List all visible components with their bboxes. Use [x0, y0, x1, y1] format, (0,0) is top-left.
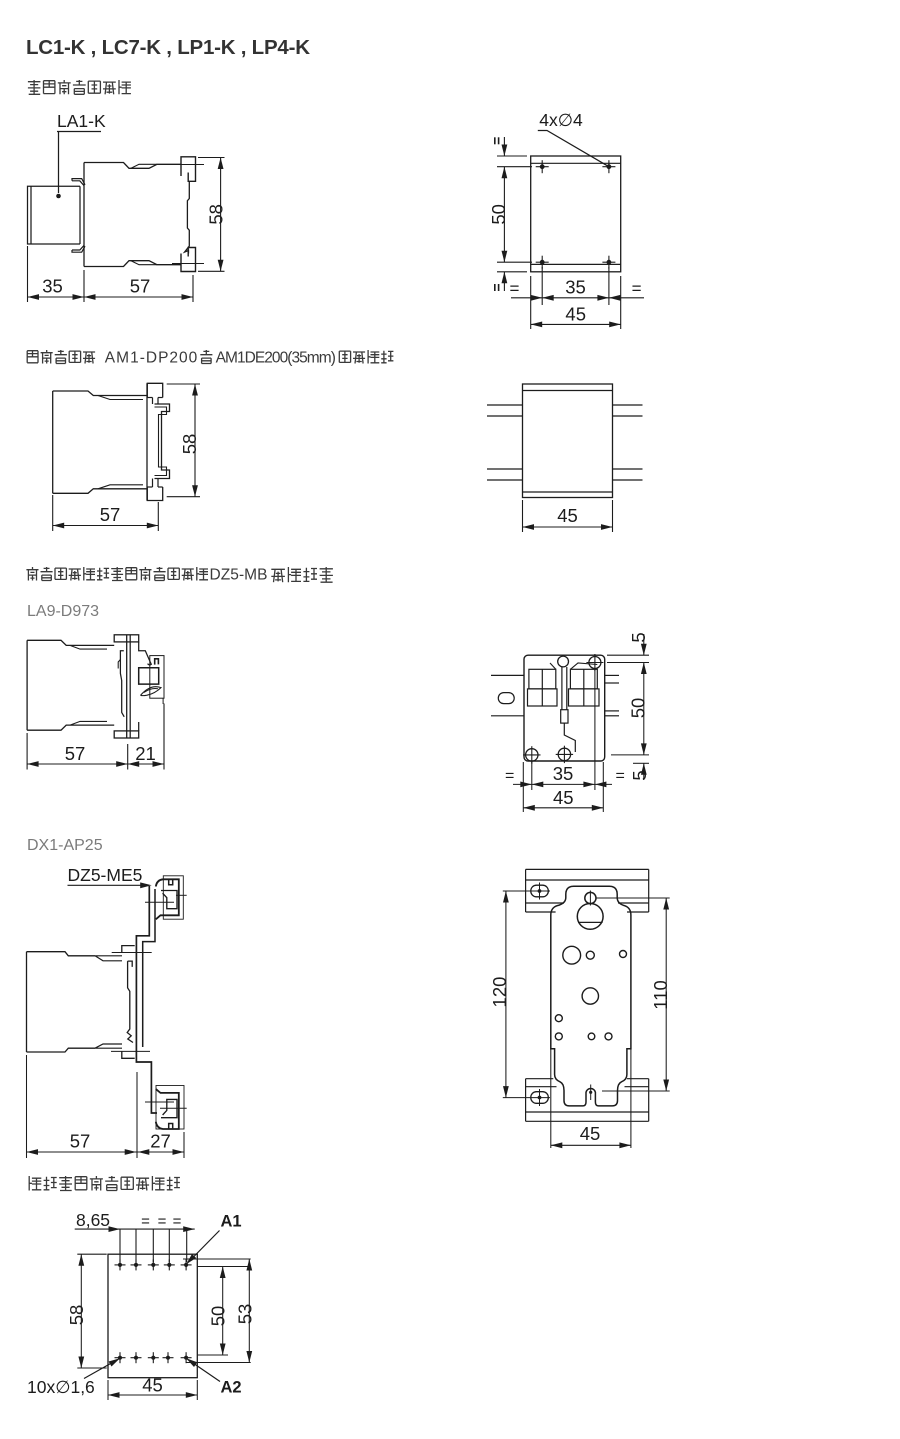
svg-text:57: 57 — [65, 743, 86, 764]
svg-text:=: = — [505, 768, 514, 785]
svg-text:50: 50 — [627, 698, 648, 719]
svg-text:LA9-D973: LA9-D973 — [27, 603, 99, 620]
svg-text:53: 53 — [234, 1304, 255, 1325]
svg-text:45: 45 — [565, 304, 586, 325]
svg-text:110: 110 — [650, 980, 671, 1010]
svg-text:27: 27 — [150, 1131, 171, 1152]
svg-text:58: 58 — [66, 1305, 87, 1326]
svg-text:=: = — [510, 279, 520, 298]
svg-text:35: 35 — [42, 276, 63, 297]
svg-text:58: 58 — [205, 204, 226, 225]
svg-text:120: 120 — [489, 977, 510, 1008]
svg-text:5: 5 — [628, 632, 649, 642]
svg-text:45: 45 — [142, 1375, 163, 1396]
svg-text:10x∅1,6: 10x∅1,6 — [27, 1377, 95, 1397]
svg-text:57: 57 — [130, 276, 151, 297]
svg-text:45: 45 — [553, 787, 574, 808]
svg-text:DX1-AP25: DX1-AP25 — [27, 837, 103, 854]
svg-text:DZ5-ME5: DZ5-ME5 — [68, 865, 143, 885]
svg-text:LA1-K: LA1-K — [57, 111, 106, 131]
svg-text:45: 45 — [557, 505, 578, 526]
svg-text:5: 5 — [629, 770, 650, 780]
svg-text:50: 50 — [207, 1306, 228, 1327]
svg-text:LC1-K , LC7-K , LP1-K , LP4-K: LC1-K , LC7-K , LP1-K , LP4-K — [26, 36, 310, 59]
svg-text:35: 35 — [565, 277, 586, 298]
svg-text:4x∅4: 4x∅4 — [539, 110, 583, 130]
svg-text:AM1-DP200: AM1-DP200 — [105, 350, 198, 367]
svg-text:DZ5-MB: DZ5-MB — [210, 567, 268, 584]
svg-text:A1: A1 — [221, 1213, 242, 1231]
svg-text:50: 50 — [488, 204, 509, 225]
svg-text:=: = — [141, 1213, 150, 1230]
svg-text:AM1DE200(35mm): AM1DE200(35mm) — [216, 350, 336, 367]
svg-text:45: 45 — [580, 1123, 601, 1144]
svg-text:8,65: 8,65 — [76, 1210, 110, 1230]
svg-text:A2: A2 — [221, 1379, 242, 1397]
svg-text:57: 57 — [100, 504, 121, 525]
svg-text:=: = — [632, 279, 642, 298]
svg-text:=: = — [616, 768, 625, 785]
svg-text:58: 58 — [179, 434, 200, 455]
svg-text:35: 35 — [553, 763, 574, 784]
svg-text:21: 21 — [135, 743, 156, 764]
svg-text:57: 57 — [70, 1131, 91, 1152]
svg-text:=: = — [173, 1213, 182, 1230]
svg-text:=: = — [158, 1213, 167, 1230]
